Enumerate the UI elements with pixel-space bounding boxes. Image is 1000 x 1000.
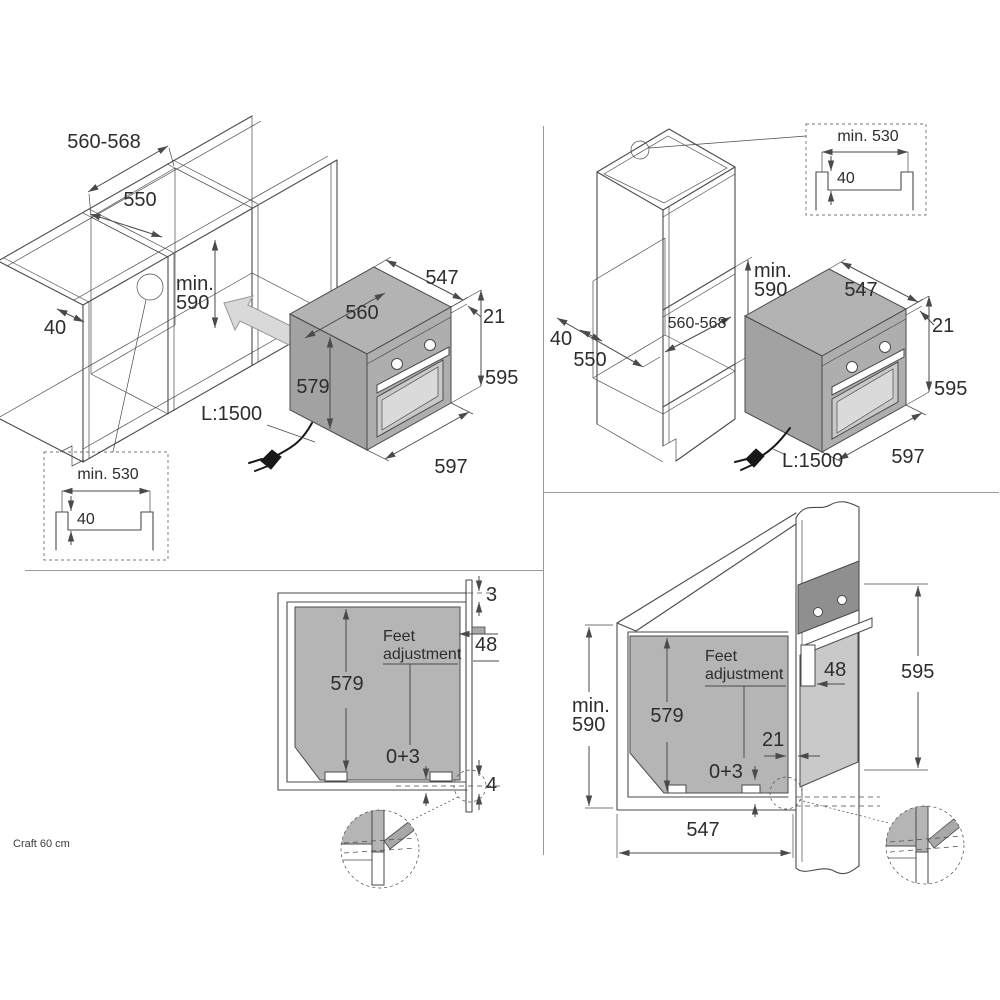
dim-niche-height-label: min. 590 (754, 262, 792, 300)
inset-recess-label: 40 (77, 511, 95, 529)
oven-knob (425, 340, 436, 351)
dim-niche-height-label: min. 590 (572, 697, 610, 735)
cabinet-wireframe (0, 116, 337, 466)
detail-callout-circle (137, 274, 163, 300)
dim-oven-frame-label: 21 (483, 308, 505, 327)
dim-oven-front-height-label: 595 (934, 380, 967, 399)
dim-bracket-depth-label: 48 (824, 661, 846, 680)
dim-niche-height-label: min. 590 (176, 275, 214, 313)
adjustable-foot (384, 820, 417, 849)
dim-rail-width-label: 40 (40, 319, 70, 338)
mounting-bracket (472, 627, 485, 634)
inset-min-width-label: min. 530 (822, 128, 914, 146)
oven-foot (430, 772, 452, 781)
dim-oven-total-width-label: 597 (429, 458, 473, 477)
dim-niche-width-label: 560-568 (663, 315, 731, 333)
dim-body-height-label: 579 (646, 707, 688, 726)
plinth (60, 446, 84, 466)
foot-detail-circle (341, 810, 419, 888)
oven-knob (814, 608, 823, 617)
foot-detail-circle (886, 806, 964, 885)
power-plug-icon (249, 450, 281, 471)
dim-bracket-depth-label: 48 (475, 636, 497, 655)
oven-knob (838, 596, 847, 605)
dim-top-gap-label: 3 (486, 586, 497, 605)
oven-knob (880, 342, 891, 353)
cable-length-label: L:1500 (201, 405, 262, 424)
feet-adjustment-label: Feet adjustment (705, 648, 783, 684)
oven-foot (742, 785, 760, 793)
cable-leader-line (267, 425, 315, 442)
cabinet-door-panel (796, 502, 872, 874)
dim-body-height-label: 579 (326, 675, 368, 694)
callout-leader-line (799, 800, 889, 823)
dim-oven-width-label: 560 (340, 304, 384, 323)
insertion-arrow-icon (224, 296, 297, 345)
appliance-installation-diagram: 560-568 550 min. 590 40 547 560 21 579 5… (0, 0, 1000, 1000)
dim-front-height-label: 595 (901, 663, 934, 682)
dim-door-gap-label: 21 (762, 731, 784, 750)
dim-oven-depth-label: 547 (420, 269, 464, 288)
dim-cabinet-depth-label: 550 (118, 191, 162, 210)
dim-oven-frame-label: 21 (932, 317, 954, 336)
adjustable-foot (928, 818, 961, 848)
oven-foot (668, 785, 686, 793)
oven-knob (847, 362, 858, 373)
door-section-diagram (585, 502, 964, 885)
dim-niche-width-label: 560-568 (62, 133, 146, 152)
dim-oven-depth-label: 547 (839, 281, 883, 300)
dim-depth-label: 547 (666, 821, 740, 840)
dim-cabinet-depth-line (90, 214, 162, 237)
dim-oven-total-width-label: 597 (884, 448, 932, 467)
power-plug-icon (735, 449, 764, 470)
dim-cabinet-depth-label: 550 (568, 351, 612, 370)
callout-leader-line (412, 797, 458, 820)
cable-length-label: L:1500 (782, 452, 843, 471)
niche-opening (91, 168, 252, 414)
dim-adjust-range-label: 0+3 (386, 748, 420, 767)
dim-oven-body-height-label: 579 (293, 378, 333, 397)
feet-adjustment-label: Feet adjustment (383, 628, 461, 664)
inset-min-width-label: min. 530 (62, 466, 154, 484)
oven-foot (325, 772, 347, 781)
callout-leader-line (649, 136, 806, 148)
dim-adjust-range-label: 0+3 (709, 763, 743, 782)
oven-control-panel-edge (798, 561, 859, 634)
model-name-label: Craft 60 cm (13, 839, 70, 849)
dim-rail-width-label: 40 (545, 330, 577, 349)
mounting-bracket (801, 645, 815, 686)
dim-bottom-gap-label: 4 (486, 776, 497, 795)
technical-drawing (0, 0, 1000, 1000)
cabinet-wireframe (593, 129, 735, 462)
inset-recess-label: 40 (837, 170, 855, 188)
dim-oven-front-height-label: 595 (485, 369, 518, 388)
front-panel-strip (466, 580, 472, 812)
power-cable (276, 423, 312, 456)
oven-knob (392, 359, 403, 370)
flush-section-diagram (278, 576, 500, 888)
base-cabinet-diagram (0, 116, 481, 560)
